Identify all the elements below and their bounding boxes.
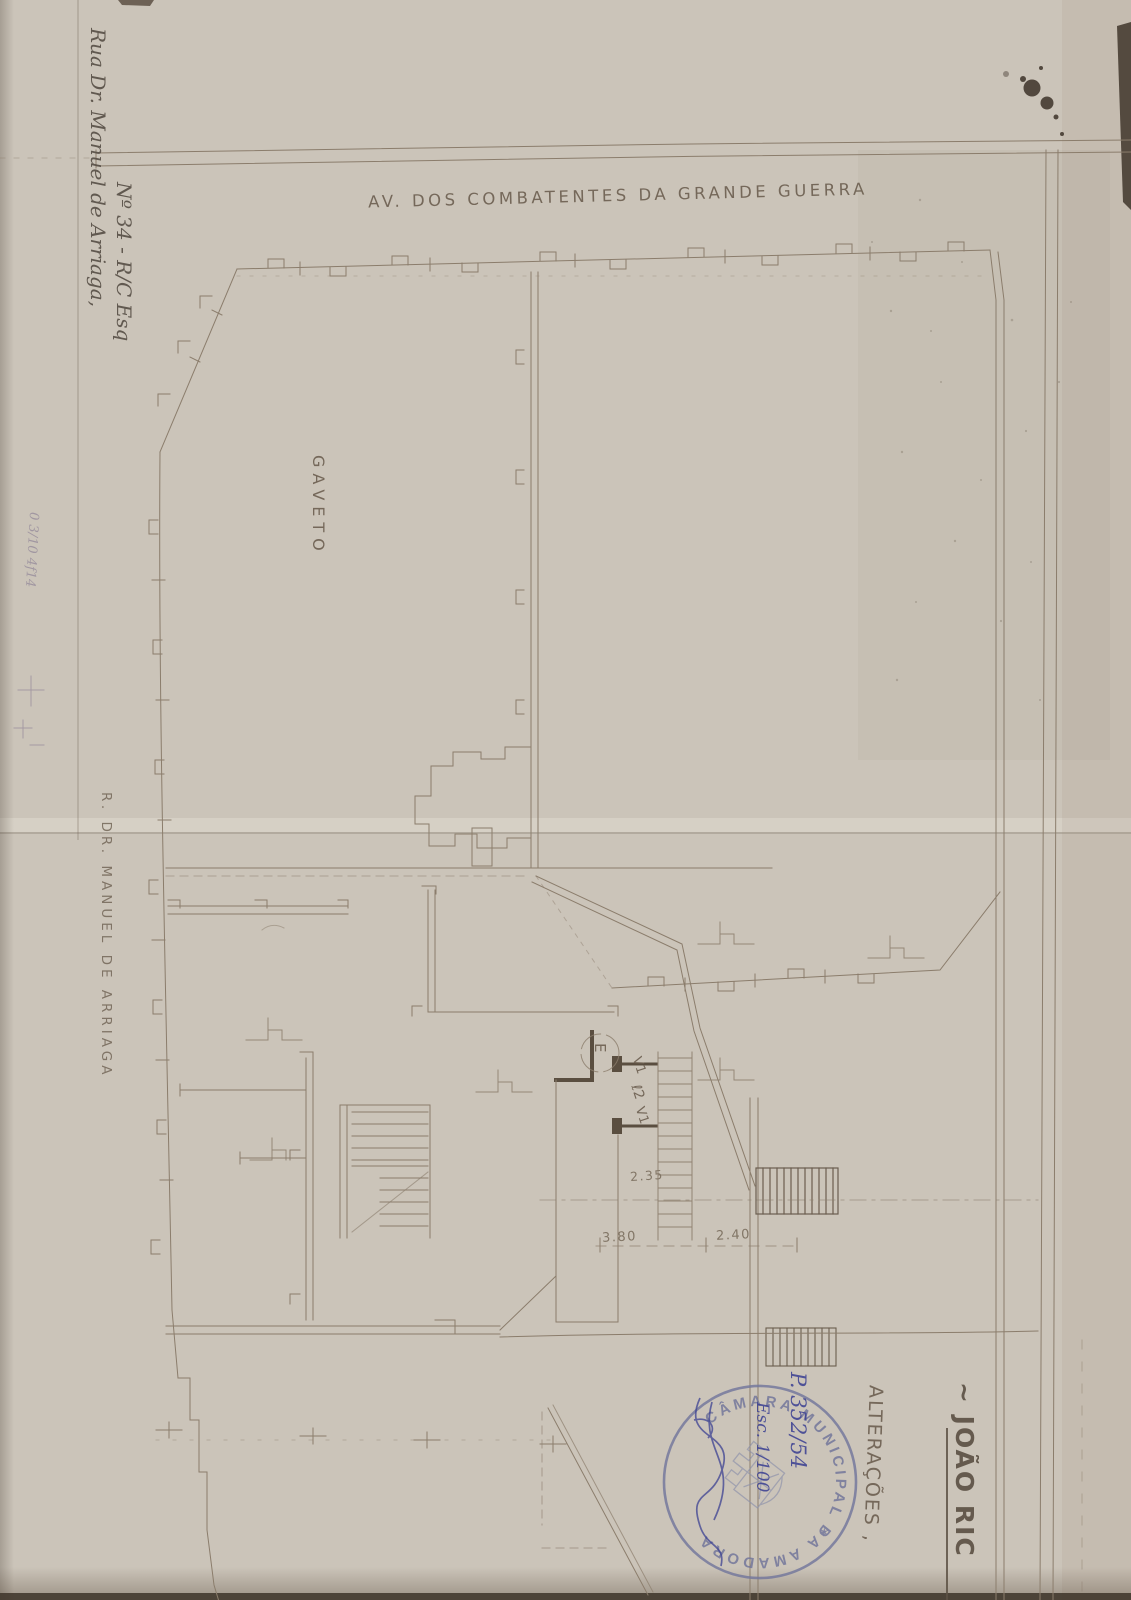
address-note-line1: Rua Dr. Manuel de Arriaga, xyxy=(86,28,110,307)
project-title-joao: ~ JOÃO RIC xyxy=(950,1382,979,1600)
courtyard-bottom xyxy=(612,892,1000,988)
dimension-235: 2.35 xyxy=(630,1167,665,1184)
diagonal-2 xyxy=(532,882,749,1190)
floor-plan-drawing: CÂMARA MUNICIPAL DA AMADORA ✶ xyxy=(0,0,1131,1600)
pencil-cross-marks xyxy=(14,676,44,745)
scanned-floor-plan: CÂMARA MUNICIPAL DA AMADORA ✶ AV. DOS CO… xyxy=(0,0,1131,1600)
exterior-stair-a xyxy=(756,1168,838,1214)
dimension-380: 3.80 xyxy=(602,1229,638,1246)
garden-piers xyxy=(156,1422,566,1452)
door-jamb xyxy=(612,1118,622,1134)
door-jamb xyxy=(612,1056,622,1072)
photo-dark-edge xyxy=(1117,22,1131,210)
lot-left-notches xyxy=(149,520,173,1254)
diagonal-1 xyxy=(536,876,755,1186)
address-note-line2: Nº 34 - R/C Esq xyxy=(112,182,136,341)
ink-blots xyxy=(1003,66,1064,136)
process-number-note: P. 352/54 xyxy=(786,1372,810,1469)
staircase-secondary xyxy=(658,1052,692,1240)
lot-line-chamfer xyxy=(160,269,237,452)
lot-line-left xyxy=(160,452,172,1310)
chamfer-notches xyxy=(158,296,222,406)
photo-dark-nick xyxy=(118,0,154,6)
diagonal-construction xyxy=(536,876,612,988)
entry-circle xyxy=(581,1034,619,1072)
lot-line-bottom-left-steps xyxy=(172,1310,220,1600)
toner-speckle-region xyxy=(858,150,1110,760)
dimension-240: 2.40 xyxy=(716,1227,752,1244)
entry-label: E xyxy=(591,1043,609,1052)
staircase-main xyxy=(340,1105,430,1238)
side-street-label: R. DR. MANUEL DE ARRIAGA xyxy=(98,792,114,1078)
scale-note: Esc. 1/100 xyxy=(752,1402,772,1492)
gaveto-corner-label: GAVETO xyxy=(309,455,328,557)
center-jog-cluster xyxy=(415,747,531,848)
